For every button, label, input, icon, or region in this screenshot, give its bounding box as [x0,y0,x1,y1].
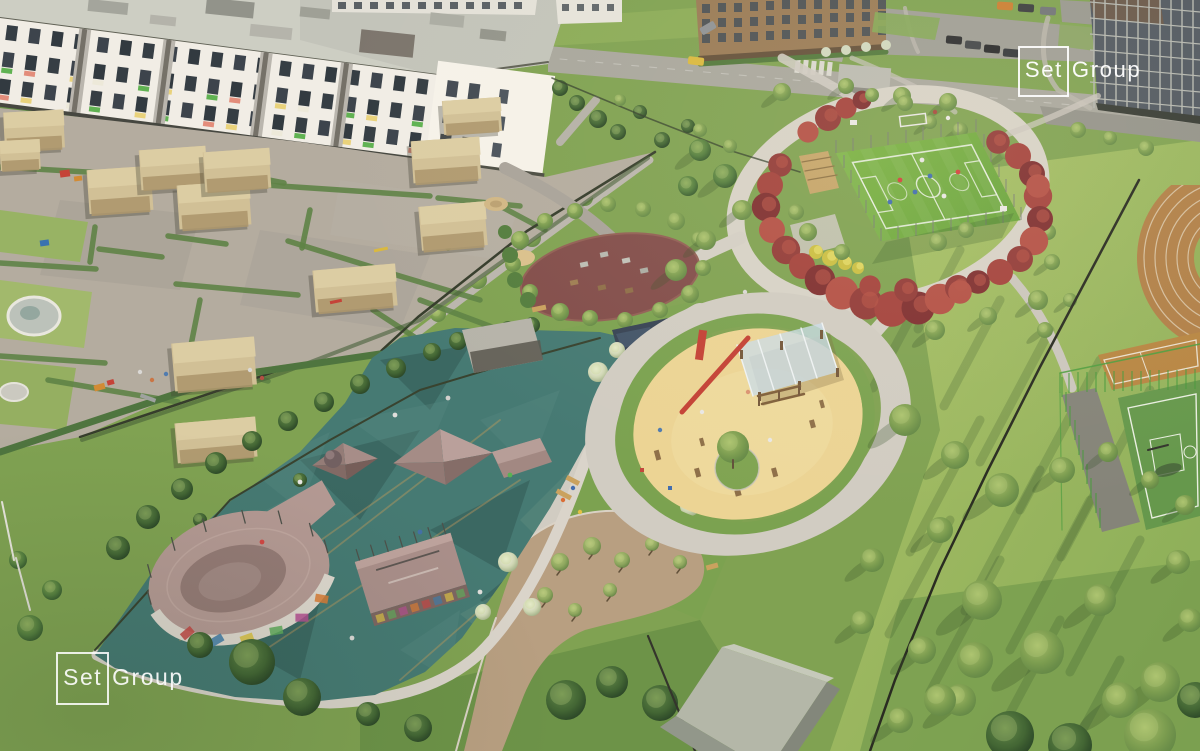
svg-text:Set: Set [63,664,102,690]
svg-text:Group: Group [112,664,184,690]
svg-text:Set: Set [1025,57,1063,82]
svg-text:Group: Group [1072,57,1141,82]
